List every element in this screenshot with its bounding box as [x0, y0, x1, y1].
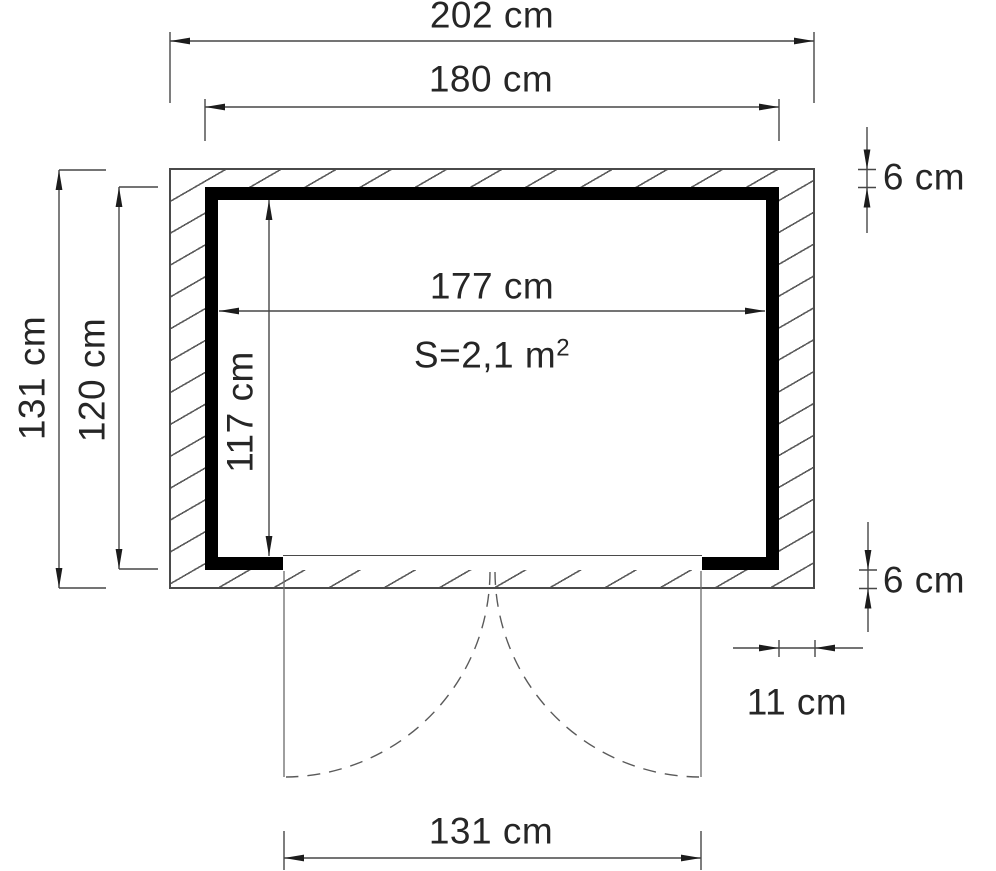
label-overhang-top: 6 cm: [883, 159, 965, 196]
floor-area-value: S=2,1 m: [414, 335, 556, 376]
door-opening: [283, 555, 702, 570]
dim-body-depth-line: [116, 187, 158, 569]
dim-overhang-bottom-line: [859, 522, 877, 632]
label-body-width: 180 cm: [429, 61, 553, 98]
label-body-depth: 120 cm: [74, 318, 111, 442]
roof-outline-hatched: [169, 168, 815, 589]
label-overhang-side: 11 cm: [747, 684, 848, 721]
label-overall-width: 202 cm: [430, 0, 554, 34]
wall-rectangle: [205, 187, 779, 570]
label-interior-depth: 117 cm: [222, 351, 259, 473]
dim-overhang-side-line: [733, 640, 863, 657]
dim-overhang-top-line: [858, 127, 876, 233]
label-overhang-bottom: 6 cm: [883, 562, 965, 599]
label-door-width: 131 cm: [429, 813, 553, 850]
floor-area-exponent: 2: [556, 335, 570, 362]
label-interior-width: 177 cm: [430, 268, 554, 305]
dim-body-width-line: [205, 99, 779, 141]
label-floor-area: S=2,1 m2: [414, 337, 570, 374]
door-swing: [284, 571, 701, 777]
label-overall-depth: 131 cm: [14, 316, 51, 440]
shed-floor-plan: 202 cm 180 cm 177 cm S=2,1 m2 117 cm 120…: [0, 0, 996, 871]
